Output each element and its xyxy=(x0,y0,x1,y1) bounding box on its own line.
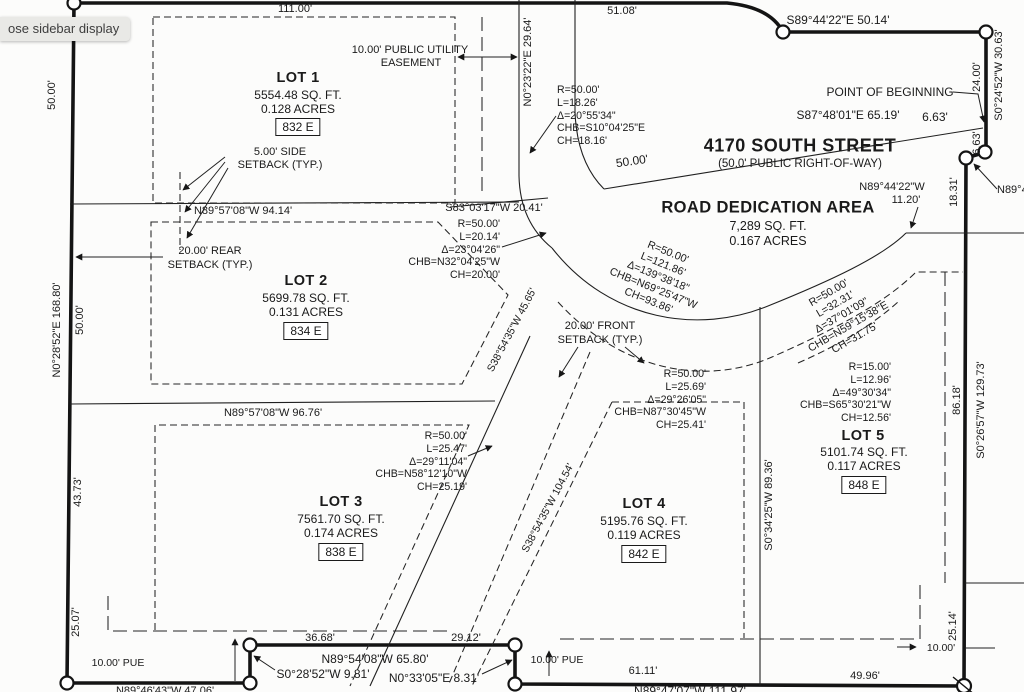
dim-top-111: 111.00' xyxy=(278,3,312,15)
dim-east-main: S0°24'52"W 30.63' xyxy=(993,29,1005,120)
dim-east-24: 24.00' xyxy=(971,62,983,92)
pue-bottom-left: 10.00' PUE xyxy=(92,657,145,669)
survey-linework xyxy=(0,0,1024,692)
dim-east-1831: 18.31' xyxy=(948,177,960,207)
dim-west-50-top: 50.00' xyxy=(46,80,58,110)
dim-east-lower: S0°26'57"W 129.73' xyxy=(975,361,987,459)
lot5-address: 848 E xyxy=(841,476,886,494)
lot1-name: LOT 1 xyxy=(276,70,319,86)
dedication-title: ROAD DEDICATION AREA xyxy=(661,199,874,218)
dim-road-n0: N0°23'22"E 29.64' xyxy=(522,18,534,107)
dedication-sqft: 7,289 SQ. FT. xyxy=(729,219,806,233)
lot5-sqft: 5101.74 SQ. FT. xyxy=(820,445,907,459)
lot4-sqft: 5195.76 SQ. FT. xyxy=(600,514,687,528)
lot5-name: LOT 5 xyxy=(841,428,884,444)
lot2-acres: 0.131 ACRES xyxy=(269,305,343,319)
curve-data-c2: R=50.00' L=20.14' Δ=23°04'26" CHB=N32°04… xyxy=(408,218,500,282)
side-setback-line1: 5.00' SIDE xyxy=(254,146,306,158)
pue-bottom-right: 10.00' xyxy=(927,642,955,654)
front-setback-line1: 20.00' FRONT xyxy=(565,320,636,332)
curve-data-c7: R=15.00' L=12.96' Δ=49°30'34" CHB=S65°30… xyxy=(800,361,891,425)
dim-west-2507: 25.07' xyxy=(70,607,82,637)
dim-east-663v: 6.63' xyxy=(971,131,983,155)
dim-3668: 36.68' xyxy=(305,632,335,644)
side-setback-line2: SETBACK (TYP.) xyxy=(238,159,323,171)
dim-s03425: S0°34'25"W 89.36' xyxy=(763,459,775,550)
dim-lot23: N89°57'08"W 96.76' xyxy=(224,407,322,419)
dim-n894422: N89°44'22"W xyxy=(859,181,924,193)
dim-east-2514: 25.14' xyxy=(947,611,959,641)
dim-s02852: S0°28'52"W 9.81' xyxy=(276,667,369,681)
dim-n894422-d: 11.20' xyxy=(892,194,921,206)
point-of-beginning-label: POINT OF BEGINNING xyxy=(826,85,953,99)
lot3-sqft: 7561.70 SQ. FT. xyxy=(297,512,384,526)
dim-n03305: N0°33'05"E 8.31' xyxy=(389,671,479,685)
dim-lot12: N89°57'08"W 94.14' xyxy=(194,205,292,217)
front-setback-line2: SETBACK (TYP.) xyxy=(558,334,643,346)
street-row: (50.0' PUBLIC RIGHT-OF-WAY) xyxy=(718,158,882,170)
lot4-acres: 0.119 ACRES xyxy=(607,528,680,542)
plat-drawing: 111.00' 51.08' S89°44'22"E 50.14' 10.00'… xyxy=(0,0,1024,692)
curve-data-c1: R=50.00' L=18.26' Δ=20°55'34" CHB=S10°04… xyxy=(557,84,645,148)
lot4-address: 842 E xyxy=(621,545,666,563)
pue-note-line2: EASEMENT xyxy=(381,57,442,69)
dim-s830317: S83°03'17"W 20.41' xyxy=(445,202,543,214)
rear-setback-line1: 20.00' REAR xyxy=(178,245,241,257)
lot1-sqft: 5554.48 SQ. FT. xyxy=(254,88,341,102)
dim-663-h: 6.63' xyxy=(922,110,948,124)
dim-6111: 61.11' xyxy=(629,665,658,677)
lot3-name: LOT 3 xyxy=(319,494,362,510)
lot3-address: 838 E xyxy=(318,543,363,561)
lot-lines xyxy=(70,0,1024,686)
dim-4996: 49.96' xyxy=(850,670,880,682)
dim-bottom-clipped-left: N89°46'43"W 47.06' xyxy=(116,685,214,692)
dim-east-8618: 86.18' xyxy=(951,385,963,415)
dim-bottom-clipped-center: N89°47'07"W 111.97' xyxy=(634,684,746,692)
lot1-acres: 0.128 ACRES xyxy=(261,102,335,116)
dim-n895408: N89°54'08"W 65.80' xyxy=(321,652,428,666)
dim-top-5108: 51.08' xyxy=(607,5,637,17)
lot2-address: 834 E xyxy=(283,322,328,340)
dim-west-4373: 43.73' xyxy=(72,477,84,507)
street-name: 4170 SOUTH STREET xyxy=(704,136,897,157)
curve-data-c6: R=50.00' L=25.69' Δ=29°26'05" CHB=N87°30… xyxy=(614,368,706,432)
dim-2912: 29.12' xyxy=(451,632,481,644)
dedication-acres: 0.167 ACRES xyxy=(729,234,806,248)
dim-west-50-mid: 50.00' xyxy=(74,305,86,335)
dim-ne-bearing: S89°44'22"E 50.14' xyxy=(786,13,889,27)
pue-bottom-center: 10.00' PUE xyxy=(531,654,584,666)
lot2-name: LOT 2 xyxy=(284,273,327,289)
dim-west-main: N0°28'52"E 168.80' xyxy=(51,282,63,377)
curve-data-c5: R=50.00' L=25.47' Δ=29°11'04" CHB=N58°12… xyxy=(375,430,467,494)
lot1-address: 832 E xyxy=(275,118,320,136)
lot5-acres: 0.117 ACRES xyxy=(827,459,900,473)
dim-pob-bearing: S87°48'01"E 65.19' xyxy=(796,108,899,122)
lot3-acres: 0.174 ACRES xyxy=(304,526,378,540)
dim-east-clipped: N89°4 xyxy=(997,184,1024,196)
lot4-name: LOT 4 xyxy=(622,496,665,512)
lot2-sqft: 5699.78 SQ. FT. xyxy=(262,291,349,305)
rear-setback-line2: SETBACK (TYP.) xyxy=(168,259,253,271)
sidebar-tooltip: ose sidebar display xyxy=(0,17,130,41)
pue-note-line1: 10.00' PUBLIC UTILITY xyxy=(352,44,468,56)
